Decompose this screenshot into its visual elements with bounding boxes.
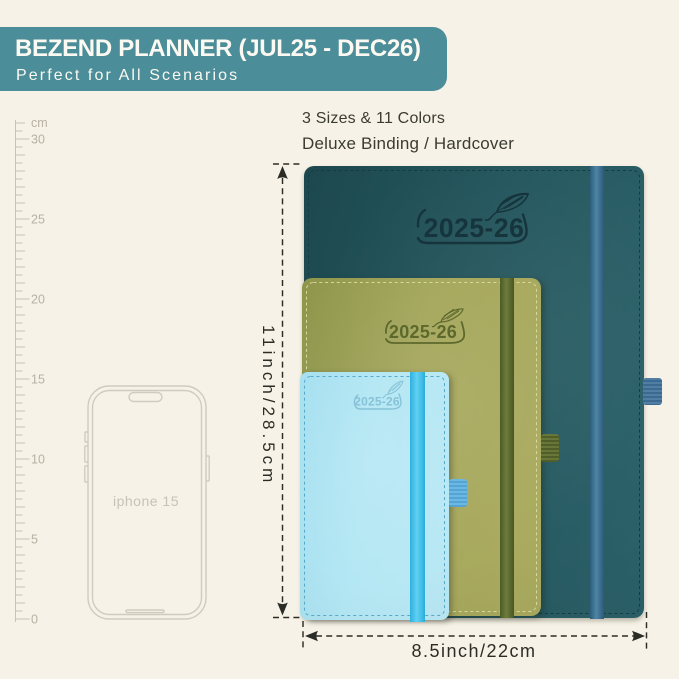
svg-text:11inch/28.5cm: 11inch/28.5cm [259,325,278,486]
svg-text:8.5inch/22cm: 8.5inch/22cm [411,641,536,661]
